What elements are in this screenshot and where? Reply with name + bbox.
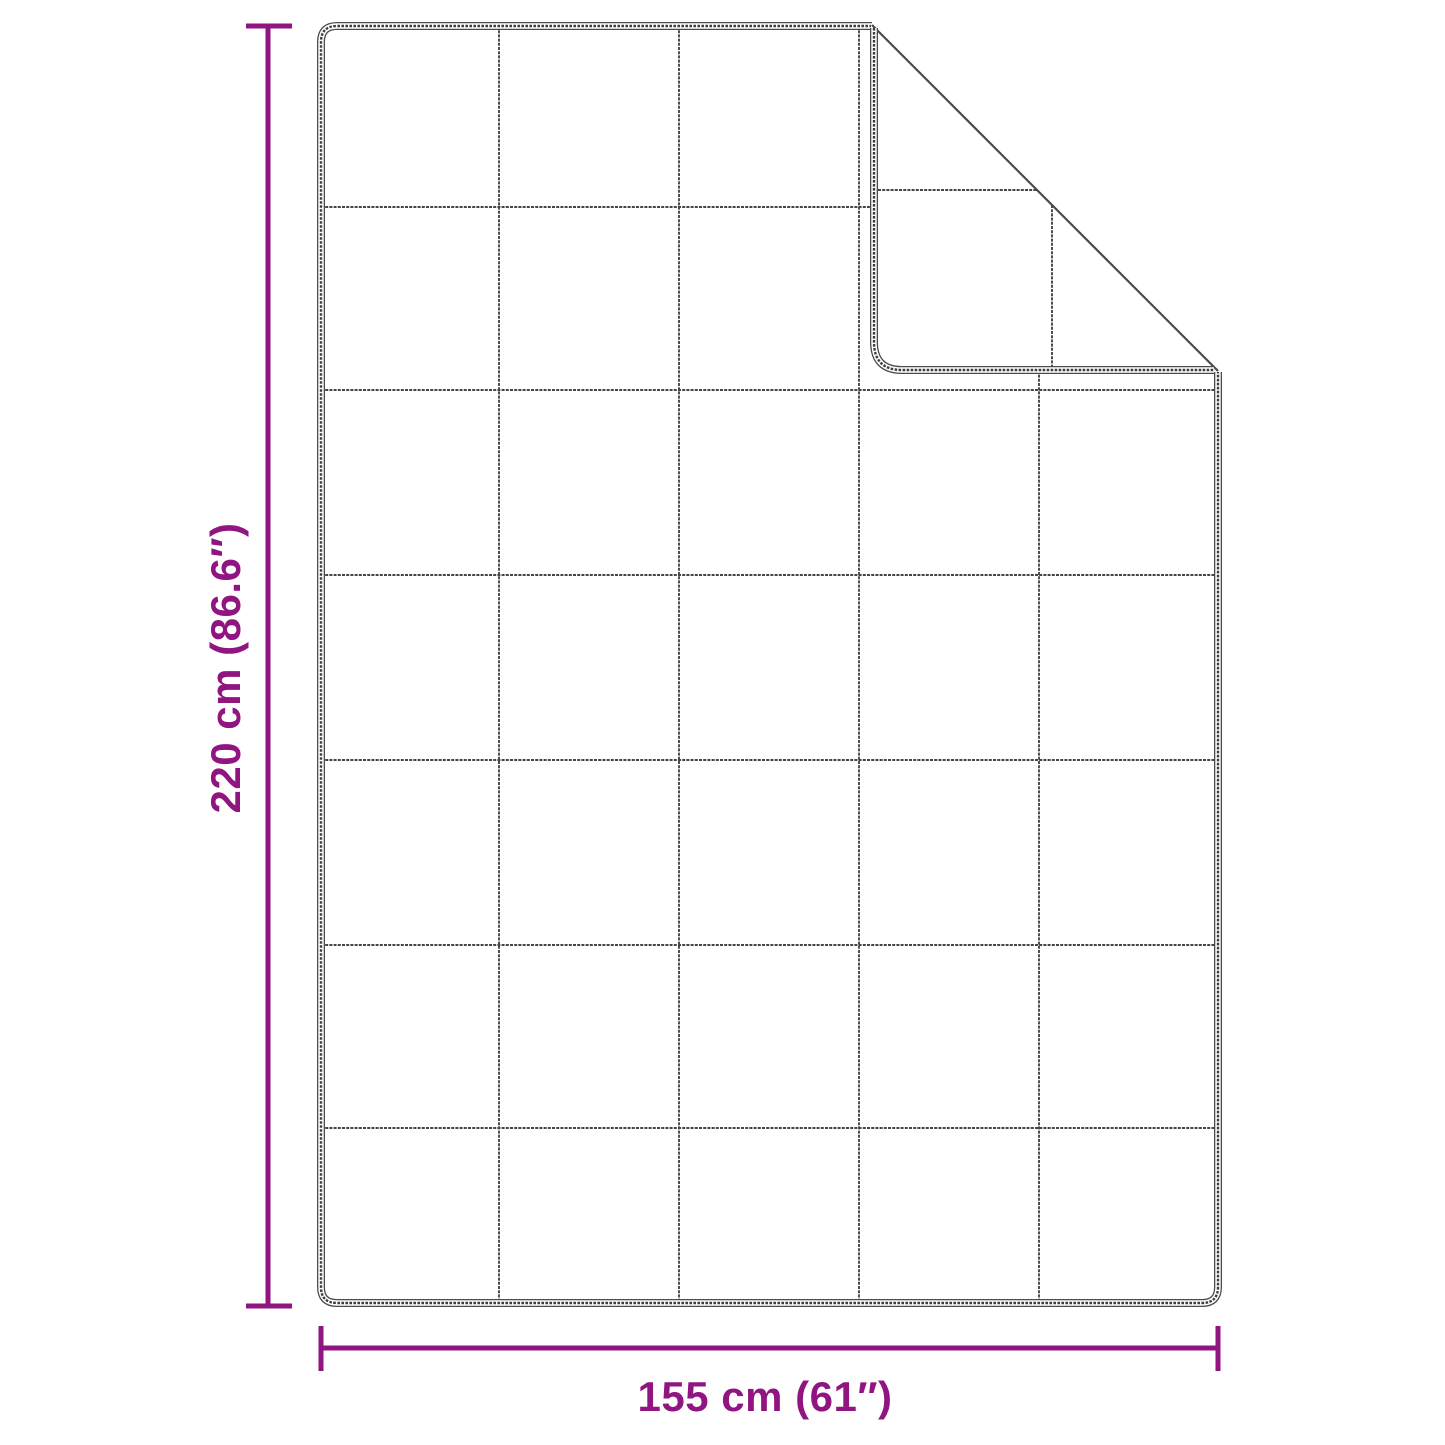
quilt-grid [321, 26, 1218, 1303]
dimension-diagram: 220 cm (86.6″) 155 cm (61″) [0, 0, 1445, 1445]
blanket-illustration [321, 23, 1219, 1303]
width-dimension-label: 155 cm (61″) [638, 1376, 893, 1418]
blanket-outline [321, 26, 1218, 1303]
height-dimension-line [246, 26, 292, 1306]
height-dimension-label: 220 cm (86.6″) [205, 523, 247, 814]
width-dimension-line [321, 1326, 1218, 1371]
folded-corner [869, 23, 1219, 373]
